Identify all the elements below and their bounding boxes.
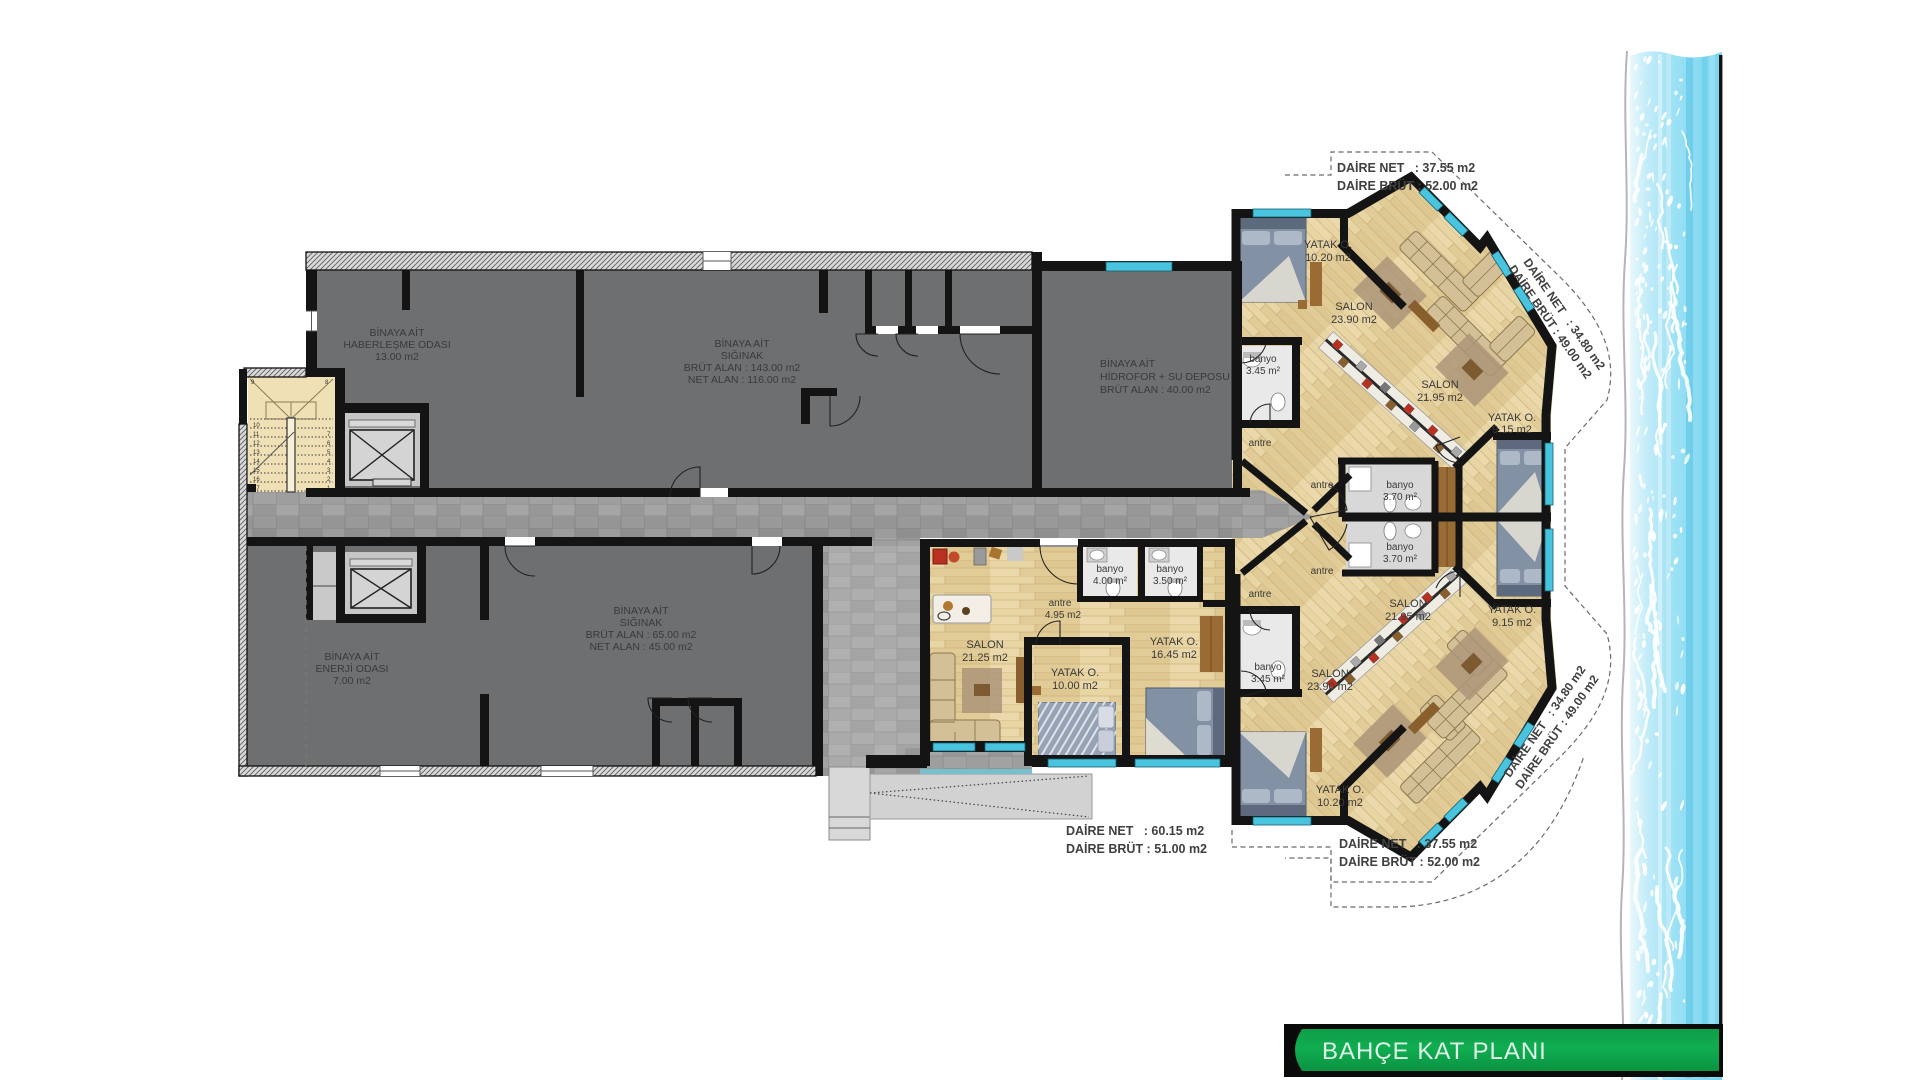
svg-text:16.45 m2: 16.45 m2 xyxy=(1151,649,1197,661)
svg-text:SALON: SALON xyxy=(1389,598,1426,610)
svg-text:3.70 m²: 3.70 m² xyxy=(1383,492,1418,503)
svg-text:14: 14 xyxy=(253,459,260,465)
svg-text:4.95 m2: 4.95 m2 xyxy=(1045,610,1082,621)
svg-text:10.20 m2: 10.20 m2 xyxy=(1317,797,1363,809)
svg-text:23.90 m2: 23.90 m2 xyxy=(1331,314,1377,326)
svg-text:7.00 m2: 7.00 m2 xyxy=(333,675,371,687)
svg-text:13.00 m2: 13.00 m2 xyxy=(375,351,419,363)
svg-text:10.00 m2: 10.00 m2 xyxy=(1052,680,1098,692)
svg-text:BRÜT ALAN : 143.00 m2: BRÜT ALAN : 143.00 m2 xyxy=(684,362,801,374)
svg-text:YATAK O.: YATAK O. xyxy=(1150,636,1198,648)
svg-text:DAİRE NET : 60.15 m2: DAİRE NET : 60.15 m2 xyxy=(1066,823,1204,838)
svg-text:NET ALAN : 45.00 m2: NET ALAN : 45.00 m2 xyxy=(589,641,692,653)
svg-text:antre: antre xyxy=(1249,589,1272,600)
svg-text:15: 15 xyxy=(253,468,260,474)
svg-text:23.90 m2: 23.90 m2 xyxy=(1307,681,1353,693)
svg-text:16: 16 xyxy=(253,477,260,483)
svg-text:13: 13 xyxy=(253,450,260,456)
svg-text:YATAK O.: YATAK O. xyxy=(1304,239,1352,251)
svg-text:YATAK O.: YATAK O. xyxy=(1488,604,1536,616)
svg-text:SIĞINAK: SIĞINAK xyxy=(721,349,764,362)
svg-text:12: 12 xyxy=(253,441,260,447)
svg-text:antre: antre xyxy=(1049,598,1072,609)
svg-text:HABERLEŞME ODASI: HABERLEŞME ODASI xyxy=(343,339,450,351)
svg-text:SALON: SALON xyxy=(1311,668,1348,680)
svg-text:DAİRE NET : 37.55 m2: DAİRE NET : 37.55 m2 xyxy=(1339,836,1477,851)
svg-text:BİNAYA AİT: BİNAYA AİT xyxy=(613,604,669,617)
svg-text:ENERJİ ODASI: ENERJİ ODASI xyxy=(316,662,389,675)
svg-text:SALON: SALON xyxy=(1335,301,1372,313)
svg-text:antre: antre xyxy=(1311,566,1334,577)
svg-text:11: 11 xyxy=(253,432,260,438)
svg-text:3.45 m²: 3.45 m² xyxy=(1246,366,1281,377)
svg-text:banyo: banyo xyxy=(1254,662,1282,673)
svg-text:3.45 m²: 3.45 m² xyxy=(1251,674,1286,685)
svg-text:banyo: banyo xyxy=(1156,564,1184,575)
svg-text:SALON: SALON xyxy=(1421,379,1458,391)
svg-text:antre: antre xyxy=(1311,480,1334,491)
svg-text:BRÜT ALAN : 65.00 m2: BRÜT ALAN : 65.00 m2 xyxy=(586,629,697,641)
svg-text:SIĞINAK: SIĞINAK xyxy=(620,616,663,629)
svg-text:21.95 m2: 21.95 m2 xyxy=(1385,611,1431,623)
svg-text:banyo: banyo xyxy=(1386,480,1414,491)
svg-text:3.50 m²: 3.50 m² xyxy=(1153,576,1188,587)
svg-text:BİNAYA AİT: BİNAYA AİT xyxy=(369,326,425,339)
svg-text:antre: antre xyxy=(1249,438,1272,449)
svg-text:10.20 m2: 10.20 m2 xyxy=(1305,252,1351,264)
svg-text:BİNAYA AİT: BİNAYA AİT xyxy=(324,650,380,663)
svg-text:SALON: SALON xyxy=(966,639,1003,651)
svg-text:banyo: banyo xyxy=(1386,542,1414,553)
svg-text:YATAK O.: YATAK O. xyxy=(1488,412,1536,424)
svg-text:banyo: banyo xyxy=(1096,564,1124,575)
svg-text:YATAK O.: YATAK O. xyxy=(1051,667,1099,679)
svg-text:BAHÇE KAT PLANI: BAHÇE KAT PLANI xyxy=(1322,1038,1547,1065)
svg-text:YATAK O.: YATAK O. xyxy=(1316,784,1364,796)
svg-text:DAİRE BRÜT : 51.00 m2: DAİRE BRÜT : 51.00 m2 xyxy=(1066,841,1207,856)
svg-text:21.95 m2: 21.95 m2 xyxy=(1417,392,1463,404)
svg-text:3.70 m²: 3.70 m² xyxy=(1383,554,1418,565)
svg-text:NET ALAN : 116.00 m2: NET ALAN : 116.00 m2 xyxy=(688,374,796,386)
svg-text:9.15 m2: 9.15 m2 xyxy=(1492,424,1532,436)
svg-text:BİNAYA AİT: BİNAYA AİT xyxy=(1100,357,1156,370)
svg-text:DAİRE BRÜT : 52.00 m2: DAİRE BRÜT : 52.00 m2 xyxy=(1337,178,1478,193)
svg-text:DAİRE BRÜT : 52.00 m2: DAİRE BRÜT : 52.00 m2 xyxy=(1339,854,1480,869)
svg-text:9.15 m2: 9.15 m2 xyxy=(1492,617,1532,629)
svg-text:banyo: banyo xyxy=(1249,354,1277,365)
svg-text:10: 10 xyxy=(253,423,260,429)
svg-text:4.00 m²: 4.00 m² xyxy=(1093,576,1128,587)
svg-text:BİNAYA AİT: BİNAYA AİT xyxy=(714,337,770,350)
svg-text:DAİRE NET : 37.55 m2: DAİRE NET : 37.55 m2 xyxy=(1337,160,1475,175)
svg-text:21.25 m2: 21.25 m2 xyxy=(962,652,1008,664)
svg-text:BRÜT ALAN : 40.00 m2: BRÜT ALAN : 40.00 m2 xyxy=(1100,384,1211,396)
svg-text:HİDROFOR + SU DEPOSU: HİDROFOR + SU DEPOSU xyxy=(1100,370,1230,383)
